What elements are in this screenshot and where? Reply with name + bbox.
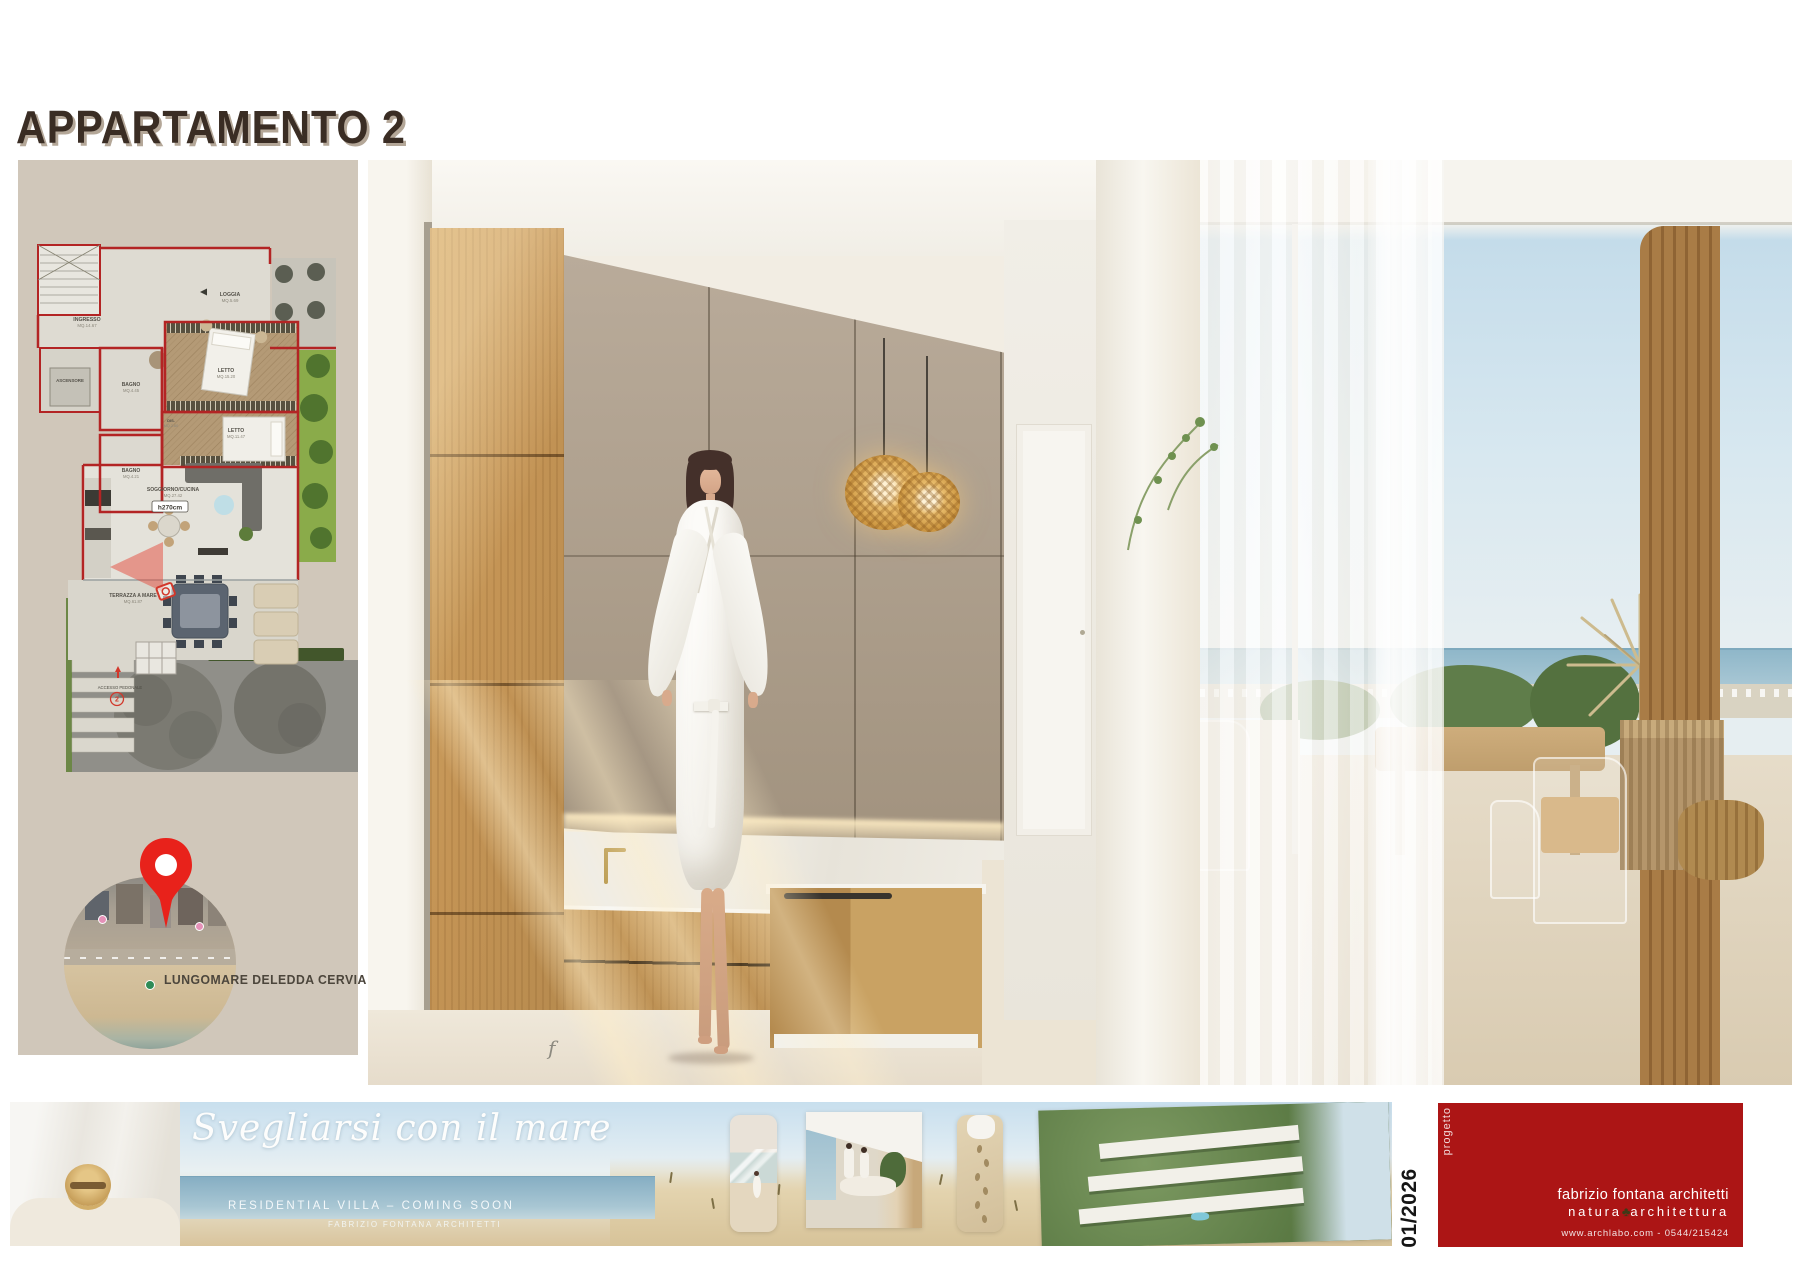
floorplan-panel: INGRESSO MQ.14.67 LOGGIA MQ.5.69 ASCENSO… — [18, 160, 358, 1055]
map-caption: LUNGOMARE DELEDDA CERVIA — [164, 972, 367, 987]
thumb-aerial-building — [1038, 1102, 1391, 1246]
floorplan: INGRESSO MQ.14.67 LOGGIA MQ.5.69 ASCENSO… — [18, 160, 358, 780]
studio-tagline: natura♣architettura — [1558, 1204, 1729, 1219]
plant-sprig — [1108, 400, 1228, 560]
footprint — [974, 1201, 980, 1210]
studio-contact: www.archlabo.com - 0544/215424 — [1558, 1228, 1729, 1239]
credit-lines: fabrizio fontana architetti natura♣archi… — [1558, 1187, 1729, 1239]
figure-shadow — [668, 1052, 754, 1064]
svg-text:MQ.4.45: MQ.4.45 — [123, 388, 140, 393]
leg — [712, 888, 730, 1050]
banner-curtain-photo — [10, 1102, 180, 1246]
render-tall-wood-cabinets — [430, 228, 564, 1085]
banner-sea — [175, 1176, 655, 1219]
svg-text:MQ.61.87: MQ.61.87 — [124, 599, 143, 604]
thumb-beach-walk — [730, 1115, 777, 1232]
building-terrace — [1099, 1125, 1300, 1159]
hand — [748, 692, 758, 708]
label-ascensore: ASCENSORE — [56, 378, 84, 383]
unit-number-badge: 2 — [115, 697, 119, 704]
render-door-handle — [1080, 630, 1085, 635]
woman-in-robe — [660, 452, 760, 1064]
sheer-curtain-fold — [1368, 160, 1432, 1085]
svg-text:MQ.4.21: MQ.4.21 — [123, 474, 140, 479]
foot — [714, 1046, 728, 1054]
rattan-pendant-light — [898, 472, 960, 532]
leg — [699, 888, 714, 1040]
render-faucet-spout — [604, 848, 626, 852]
thumb-person-head — [861, 1147, 867, 1153]
location-pin-icon — [136, 836, 196, 931]
render-left-wall — [368, 160, 432, 1085]
thumb-table — [840, 1176, 896, 1196]
kitchen-render — [368, 160, 1792, 1085]
chair-cushion — [1541, 797, 1619, 853]
thumb-footprints — [957, 1115, 1003, 1232]
svg-text:MQ.14.67: MQ.14.67 — [77, 323, 97, 328]
face — [700, 468, 721, 494]
page-title: APPARTAMENTO 2 — [16, 100, 406, 154]
teaser-banner: Svegliarsi con il mare RESIDENTIAL VILLA… — [10, 1102, 1392, 1246]
studio-credit-box: progetto fabrizio fontana architetti nat… — [1438, 1103, 1743, 1247]
label-access: ACCESSO PEDONALE — [98, 685, 143, 690]
hat-band — [70, 1182, 106, 1189]
footprint — [976, 1145, 982, 1154]
bed — [10, 1198, 180, 1246]
building-pool — [1191, 1212, 1209, 1220]
thumb-person-head — [846, 1143, 852, 1149]
render-island — [770, 888, 982, 1048]
svg-text:h270cm: h270cm — [158, 505, 182, 512]
footprint — [974, 1173, 980, 1182]
wood-side-table — [1678, 800, 1764, 880]
banner-subheadline: RESIDENTIAL VILLA – COMING SOON — [228, 1200, 515, 1212]
render-upper-cabinets — [564, 255, 1004, 865]
building-terrace — [1088, 1156, 1303, 1192]
mini-person — [753, 1176, 761, 1198]
footprint — [983, 1159, 989, 1168]
progetto-label: progetto — [1441, 1107, 1453, 1155]
hand — [662, 690, 672, 706]
footprint — [981, 1215, 987, 1224]
wood-slat-wall — [1640, 226, 1720, 1085]
svg-text:MQ.2.60: MQ.2.60 — [164, 424, 179, 428]
render-faucet — [604, 848, 608, 884]
ceiling-height-badge: h270cm — [152, 501, 188, 512]
tagline-left: natura — [1568, 1204, 1622, 1219]
map-poi-dot — [195, 922, 204, 931]
watermark-letter: f — [548, 1036, 555, 1060]
white-cloth — [967, 1115, 995, 1139]
thumb-sky — [1288, 1102, 1392, 1242]
white-column — [1096, 160, 1200, 1085]
svg-text:MQ.15.20: MQ.15.20 — [217, 374, 236, 379]
map-building — [208, 899, 225, 926]
tagline-right: architettura — [1630, 1204, 1729, 1219]
thumb-person — [860, 1152, 869, 1178]
transparent-chair — [1490, 800, 1540, 899]
render-island-plinth — [774, 1034, 978, 1048]
pendant-cord — [926, 356, 928, 474]
issue-date: 01/2026 — [1398, 1168, 1422, 1247]
plan-stairs — [38, 245, 100, 315]
thumb-person — [844, 1148, 854, 1178]
thumb-terrace-dining — [806, 1112, 922, 1228]
studio-name: fabrizio fontana architetti — [1558, 1187, 1729, 1203]
foot — [698, 1036, 712, 1044]
pendant-cord — [883, 338, 885, 458]
label-dis: DIS. — [167, 418, 175, 423]
map-road — [64, 949, 236, 964]
banner-credit: FABRIZIO FONTANA ARCHITETTI — [328, 1220, 488, 1229]
svg-text:MQ.11.47: MQ.11.47 — [227, 434, 246, 439]
footprint — [982, 1187, 988, 1196]
render-cooktop — [784, 893, 892, 899]
svg-text:MQ.27.42: MQ.27.42 — [164, 493, 183, 498]
map-green-marker — [145, 980, 155, 990]
presentation-board: APPARTAMENTO 2 — [0, 0, 1800, 1273]
transparent-chair — [1533, 757, 1627, 924]
banner-headline: Svegliarsi con il mare — [192, 1108, 612, 1149]
thumb-sea — [806, 1130, 836, 1200]
svg-text:MQ.5.69: MQ.5.69 — [222, 298, 239, 303]
